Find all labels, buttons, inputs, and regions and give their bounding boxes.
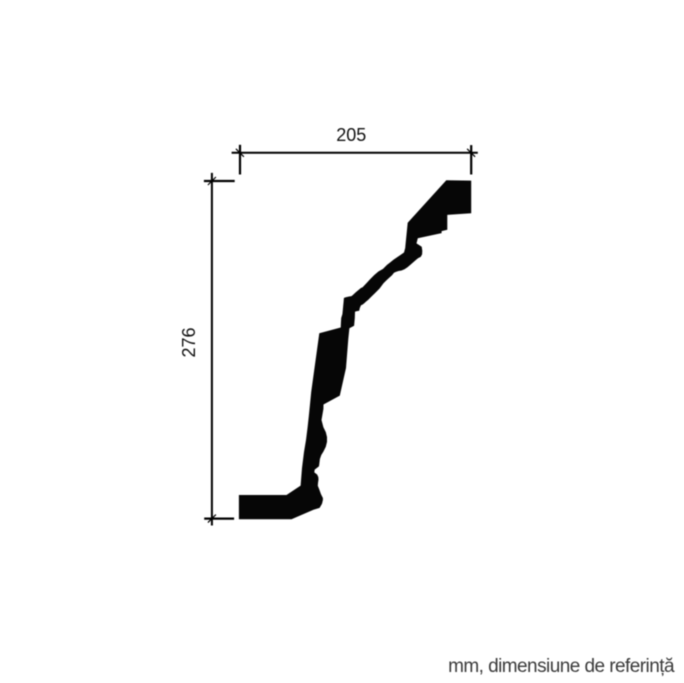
svg-text:205: 205 [336,125,366,145]
svg-text:mm, dimensiune de referință: mm, dimensiune de referință [448,656,675,677]
svg-text:276: 276 [179,327,199,357]
